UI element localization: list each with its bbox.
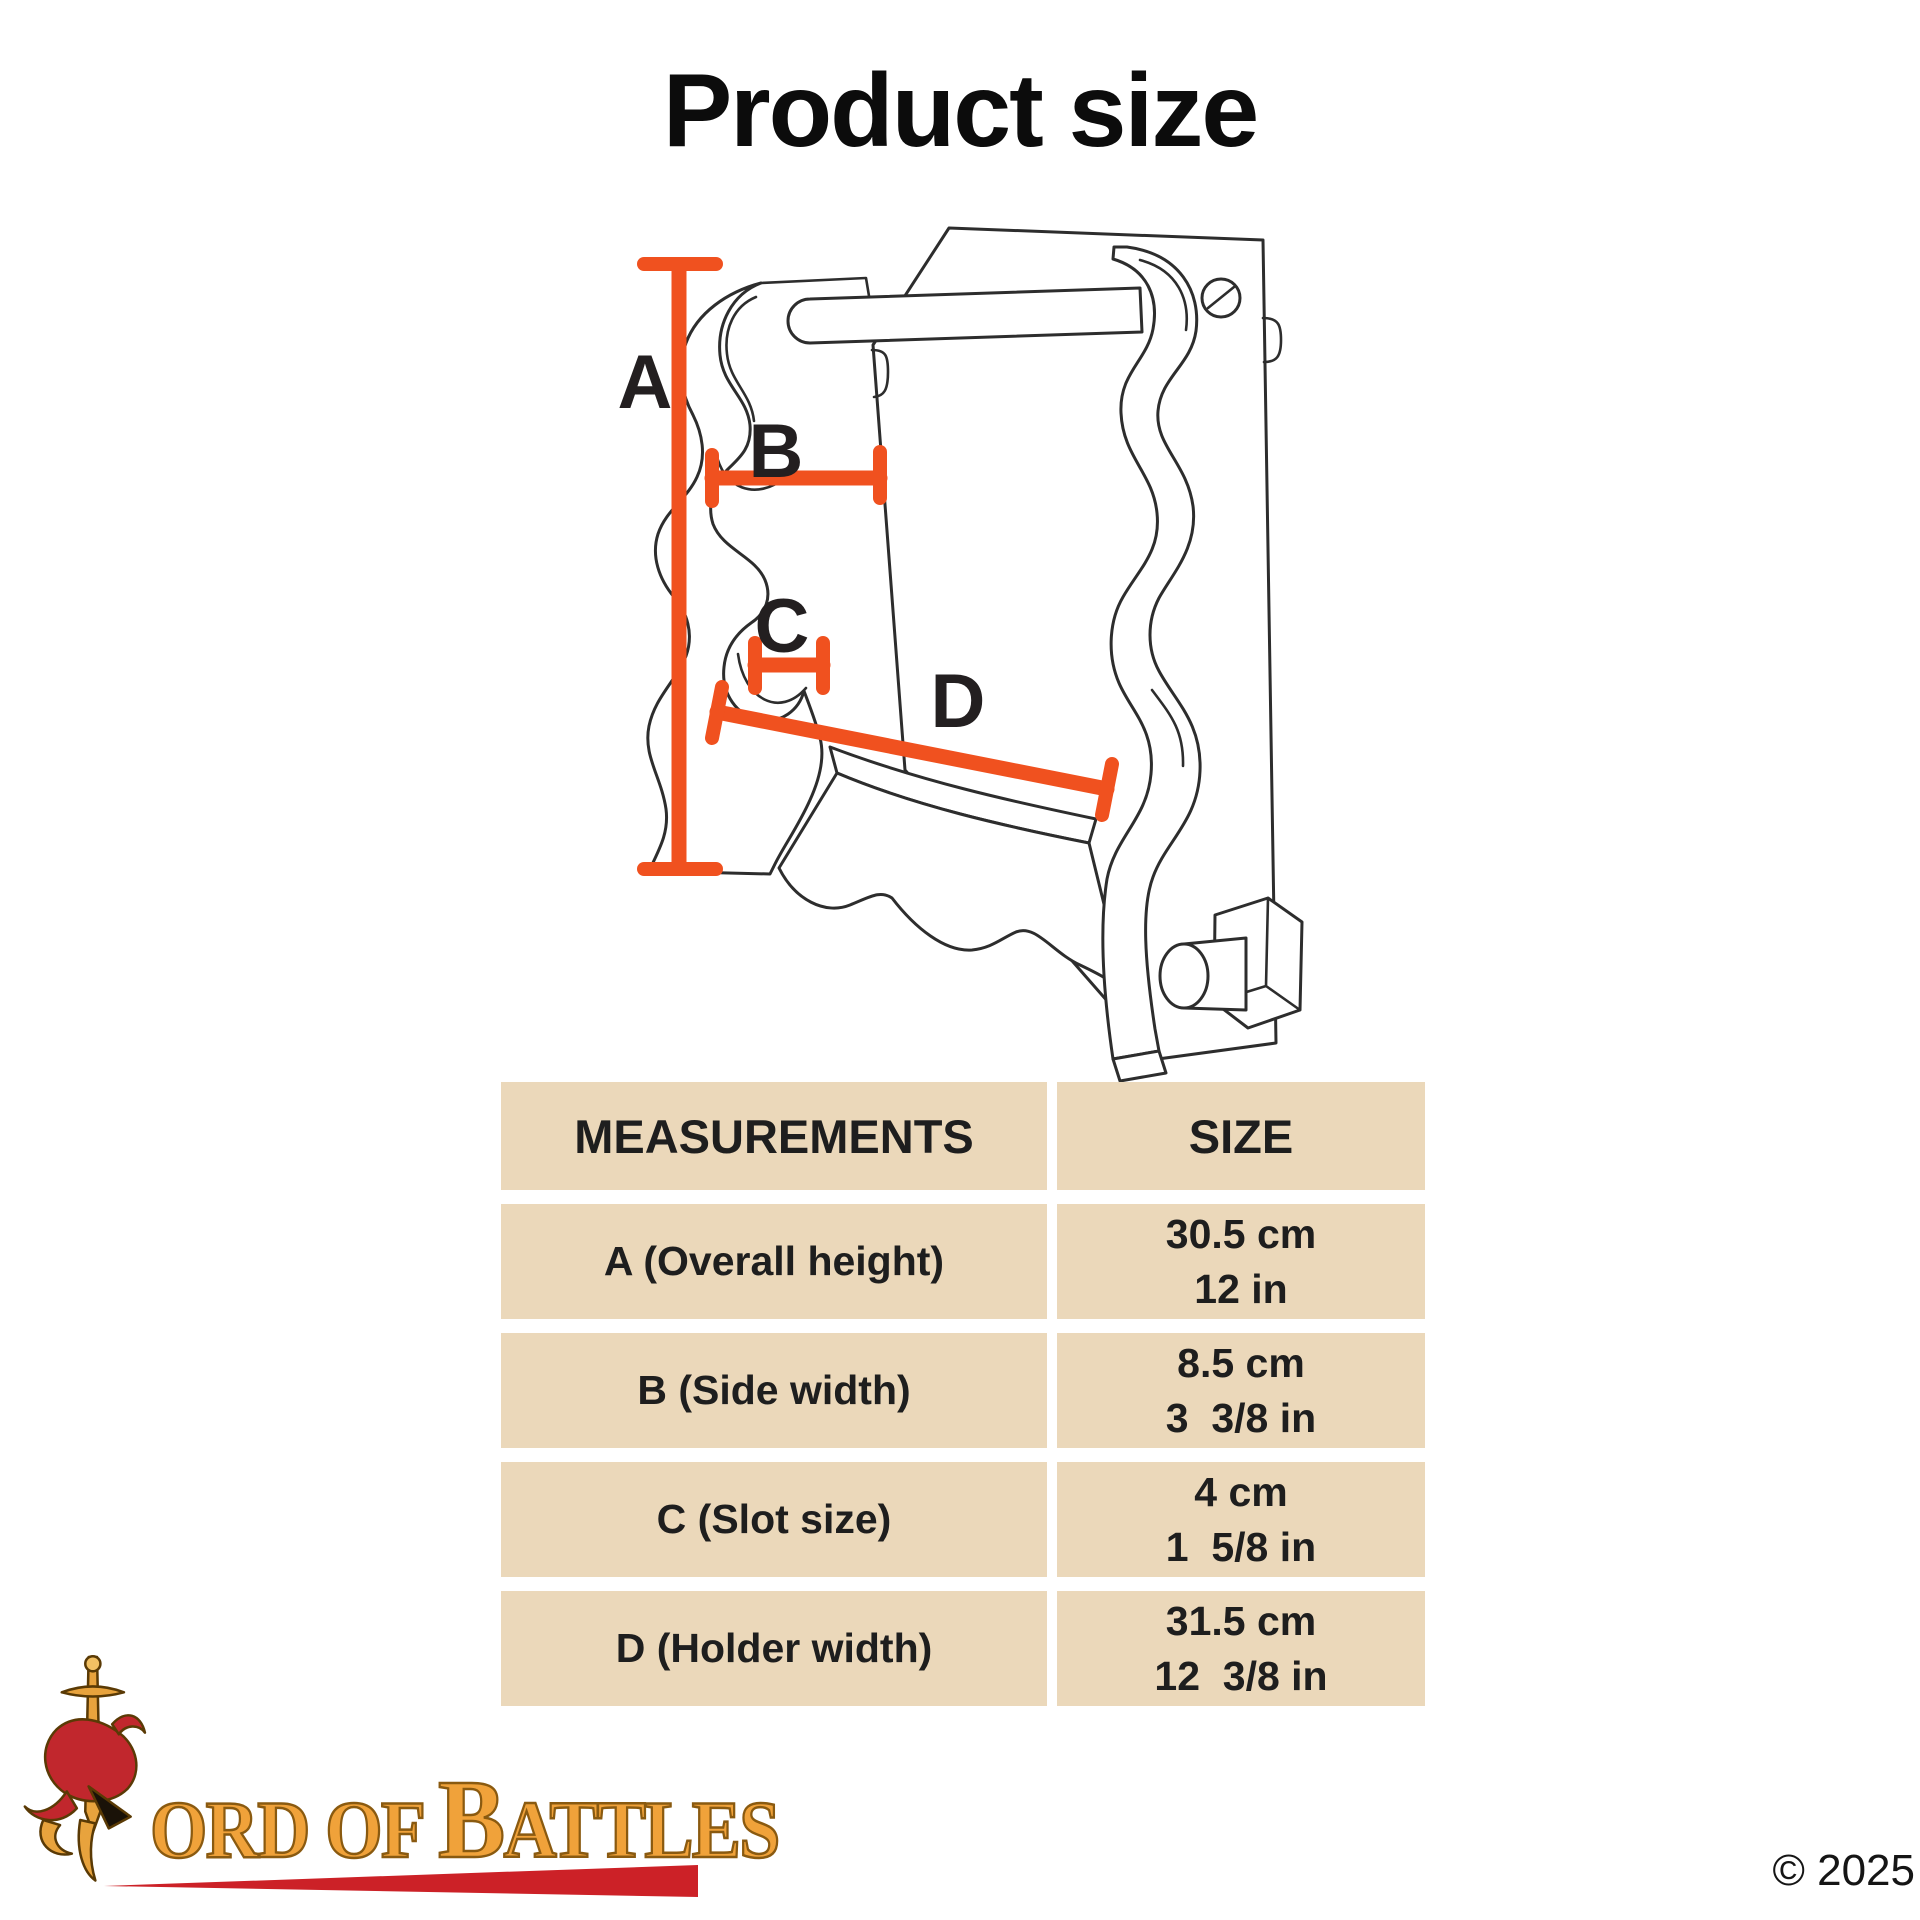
label-b: B xyxy=(749,409,804,494)
measurements-header-cell: MEASUREMENTS xyxy=(501,1082,1047,1190)
row-b-metric: 8.5 cm xyxy=(1177,1336,1305,1390)
crossbar xyxy=(788,288,1142,343)
label-a: A xyxy=(618,340,673,425)
row-d-metric: 31.5 cm xyxy=(1166,1594,1316,1648)
table-row-size: 30.5 cm 12 in xyxy=(1057,1204,1425,1319)
copyright-text: © 2025 xyxy=(1755,1846,1915,1896)
wordmark-part3: attles xyxy=(503,1783,778,1877)
table-row-label: C (Slot size) xyxy=(501,1462,1047,1577)
wordmark-part2: B xyxy=(438,1756,503,1885)
row-a-metric: 30.5 cm xyxy=(1166,1207,1316,1261)
left-bracket-top-edge xyxy=(761,278,869,296)
lord-of-battles-wordmark: ord of Battles xyxy=(150,1756,778,1885)
table-row-size: 4 cm 1 5/8 in xyxy=(1057,1462,1425,1577)
screw-icon xyxy=(1202,279,1240,317)
row-b-label: B (Side width) xyxy=(637,1367,910,1414)
table-row-label: D (Holder width) xyxy=(501,1591,1047,1706)
product-size-infographic: Product size xyxy=(0,0,1920,1920)
row-d-imperial: 12 3/8 in xyxy=(1154,1649,1327,1703)
table-row-label: A (Overall height) xyxy=(501,1204,1047,1319)
row-c-imperial: 1 5/8 in xyxy=(1166,1520,1316,1574)
table-row-label: B (Side width) xyxy=(501,1333,1047,1448)
row-c-label: C (Slot size) xyxy=(657,1496,892,1543)
table-row-size: 31.5 cm 12 3/8 in xyxy=(1057,1591,1425,1706)
row-b-imperial: 3 3/8 in xyxy=(1166,1391,1316,1445)
label-d: D xyxy=(931,659,986,744)
table-row-size: 8.5 cm 3 3/8 in xyxy=(1057,1333,1425,1448)
measurements-table: MEASUREMENTS SIZE A (Overall height) 30.… xyxy=(501,1082,1425,1706)
row-a-imperial: 12 in xyxy=(1194,1262,1287,1316)
row-a-label: A (Overall height) xyxy=(604,1238,944,1285)
label-c: C xyxy=(755,584,810,669)
wordmark-part1: ord of xyxy=(150,1783,438,1877)
row-c-metric: 4 cm xyxy=(1194,1465,1287,1519)
size-header-cell: SIZE xyxy=(1057,1082,1425,1190)
row-d-label: D (Holder width) xyxy=(616,1625,933,1672)
